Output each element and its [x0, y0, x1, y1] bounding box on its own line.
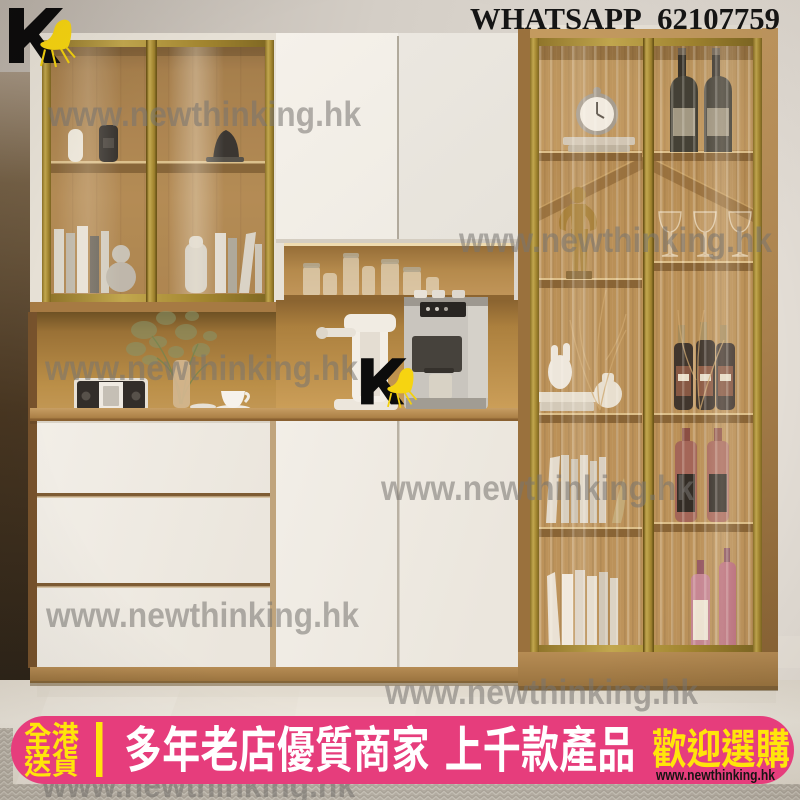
- svg-text:www.newthinking.hk: www.newthinking.hk: [655, 767, 775, 784]
